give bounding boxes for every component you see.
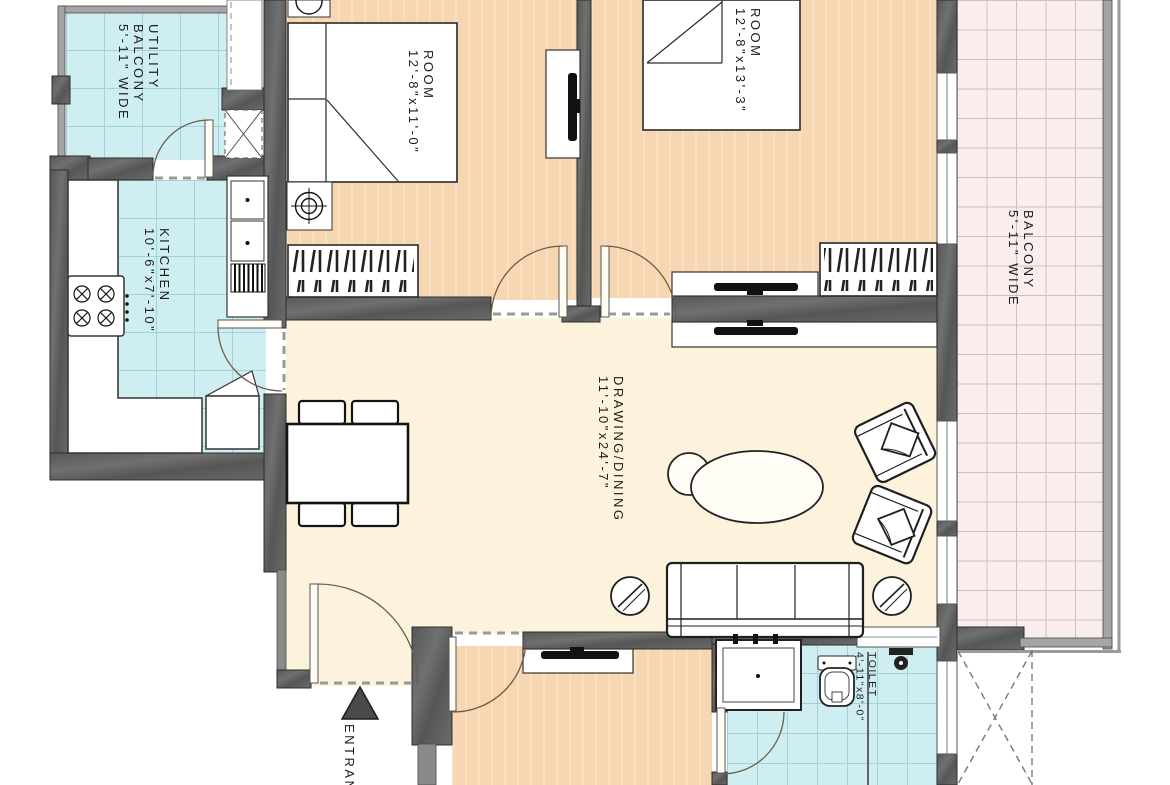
room-name: TOILET: [866, 652, 879, 722]
window-sill: [857, 627, 940, 647]
armchair: [851, 484, 934, 565]
room-name: BALCONY: [131, 24, 146, 121]
kitchen-sink-counter: [227, 176, 268, 317]
room-dimension: 5'-11" WIDE: [116, 24, 131, 121]
wardrobe: [288, 245, 418, 297]
room-dimension: 12'-8"x11'-0": [406, 50, 421, 154]
room-name: UTILITY: [146, 24, 161, 121]
double-bed: [643, 0, 800, 130]
floor-plan: UTILITY BALCONY 5'-11" WIDE KITCHEN 10'-…: [0, 0, 1170, 785]
room-name: BALCONY: [1021, 210, 1036, 307]
tv-console: [523, 647, 633, 673]
room-dimension: 10'-6"x7'-10": [142, 228, 157, 333]
room-dimension: 11'-10"x24'-7": [596, 376, 611, 522]
room-name: KITCHEN: [157, 228, 172, 333]
dining-table-set: [287, 401, 408, 526]
washbasin: [716, 634, 801, 710]
gas-stove-icon: [68, 276, 129, 336]
window: [937, 536, 957, 604]
door-bottom-room: [449, 633, 526, 712]
armchair: [853, 401, 938, 485]
side-table: [873, 577, 911, 615]
room-label-utility-balcony: UTILITY BALCONY 5'-11" WIDE: [116, 24, 161, 121]
door-room-1: [491, 246, 567, 318]
tv-unit: [546, 50, 580, 158]
window: [937, 153, 957, 244]
room-2-furniture: [643, 0, 937, 296]
room-name: ROOM: [421, 50, 436, 154]
room-dimension: 4'-11"x8'-0": [853, 652, 866, 722]
room-dimension: 12'-8"x13'-3": [733, 8, 748, 113]
door-entrance: [310, 584, 418, 684]
nightstand: [287, 182, 332, 230]
room-label-kitchen: KITCHEN 10'-6"x7'-10": [142, 228, 172, 333]
center-table: [668, 451, 823, 523]
room-label-toilet: TOILET 4'-11"x8'-0": [853, 652, 878, 722]
entrance-arrow-icon: [342, 687, 378, 719]
room-label-room-1: ROOM 12'-8"x11'-0": [406, 50, 436, 154]
window: [937, 661, 957, 754]
room-dimension: 5'-11" WIDE: [1006, 210, 1021, 307]
room-label-balcony: BALCONY 5'-11" WIDE: [1006, 210, 1036, 307]
entrance-label: ENTRANCE: [342, 724, 357, 785]
wc-toilet: [818, 656, 856, 706]
duct-shaft-x: [225, 110, 262, 158]
shower-icon: [889, 648, 913, 670]
tv-console: [672, 320, 937, 347]
room-name: DRAWING/DINING: [611, 376, 626, 522]
void-x: [958, 650, 1032, 785]
room-name: ROOM: [748, 8, 763, 113]
bottom-room-furniture: [523, 647, 633, 673]
window: [937, 421, 957, 521]
toilet-fixtures: [716, 634, 913, 785]
nightstand: [288, 0, 330, 17]
window: [937, 73, 957, 140]
wardrobe: [820, 243, 937, 296]
room-name: ENTRANCE: [342, 724, 357, 785]
side-table: [611, 577, 649, 615]
door-room-2: [601, 246, 676, 318]
sofa: [667, 563, 863, 637]
door-toilet: [717, 708, 784, 774]
room-label-room-2: ROOM 12'-8"x13'-3": [733, 8, 763, 113]
door-utility: [153, 120, 213, 178]
tv-console: [672, 272, 818, 296]
floorplan-drawing: [0, 0, 1170, 785]
room-label-drawing-dining: DRAWING/DINING 11'-10"x24'-7": [596, 376, 626, 522]
